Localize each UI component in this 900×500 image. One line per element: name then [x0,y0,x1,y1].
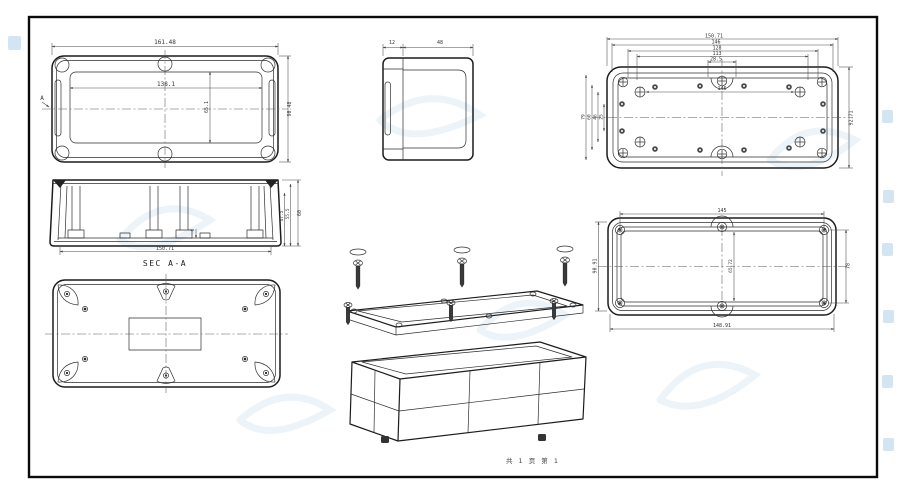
back-screws [354,257,570,289]
view-lid-inside: 145 148.91 90.91 78 65.72 [593,208,852,332]
dim-lid-inside-center: 65.72 [728,259,734,273]
drawing-sheet: 161.48 138.1 65.1 90.48 A 12 48 [0,0,900,500]
dim-base-chain-5: 28.5 [710,57,722,63]
view-section-aa: 6 150.71 SEC A-A 47.5 55.5 60 [50,180,303,268]
page-note: 共 1 页 第 1 [506,456,560,465]
dim-section-h2: 55.5 [285,208,291,219]
dim-base-height: 92.71 [849,110,855,125]
view-exploded-3d [344,246,586,443]
dim-lid-inside-left: 90.91 [593,258,599,273]
dim-lid-inside-right: 78 [846,263,852,269]
dim-section-width: 150.71 [156,246,174,252]
dim-side-base: 48 [437,40,443,46]
mount-lugs [58,284,275,384]
dim-base-left-chain-4: 25 [599,114,605,120]
cad-drawing-canvas: 161.48 138.1 65.1 90.48 A 12 48 [0,0,900,500]
dim-base-left-chain-3: 46 [593,114,599,120]
dim-lid-inside-top: 145 [717,208,726,214]
dim-lid-inner-width: 138.1 [157,81,175,88]
dim-base-left-chain-2: 60 [587,114,593,120]
view-base-inside: 146 150.71 146 128 113 28.5 92.71 79 60 … [581,34,855,177]
watermark-pattern [8,36,894,451]
view-bottom [45,274,288,393]
dim-lid-inside-bottom: 148.91 [713,323,731,329]
dim-section-h1: 47.5 [279,210,285,221]
dim-lid-overall-height: 90.48 [287,101,293,116]
dim-lid-inner-height: 65.1 [204,101,210,113]
pcb-standoffs [635,87,805,147]
dim-base-left-chain-1: 79 [581,114,587,120]
dim-base-inner-width: 146 [717,86,726,92]
dim-lid-overall-width: 161.48 [154,39,176,46]
base-iso [350,342,586,443]
dim-side-lid: 12 [389,40,395,46]
dim-section-recess: 6 [190,228,196,231]
section-label: SEC A-A [143,259,187,268]
dim-section-h3: 60 [297,210,303,216]
view-lid-top: 161.48 138.1 65.1 90.48 A [40,39,293,168]
section-marker-a: A [40,95,44,102]
